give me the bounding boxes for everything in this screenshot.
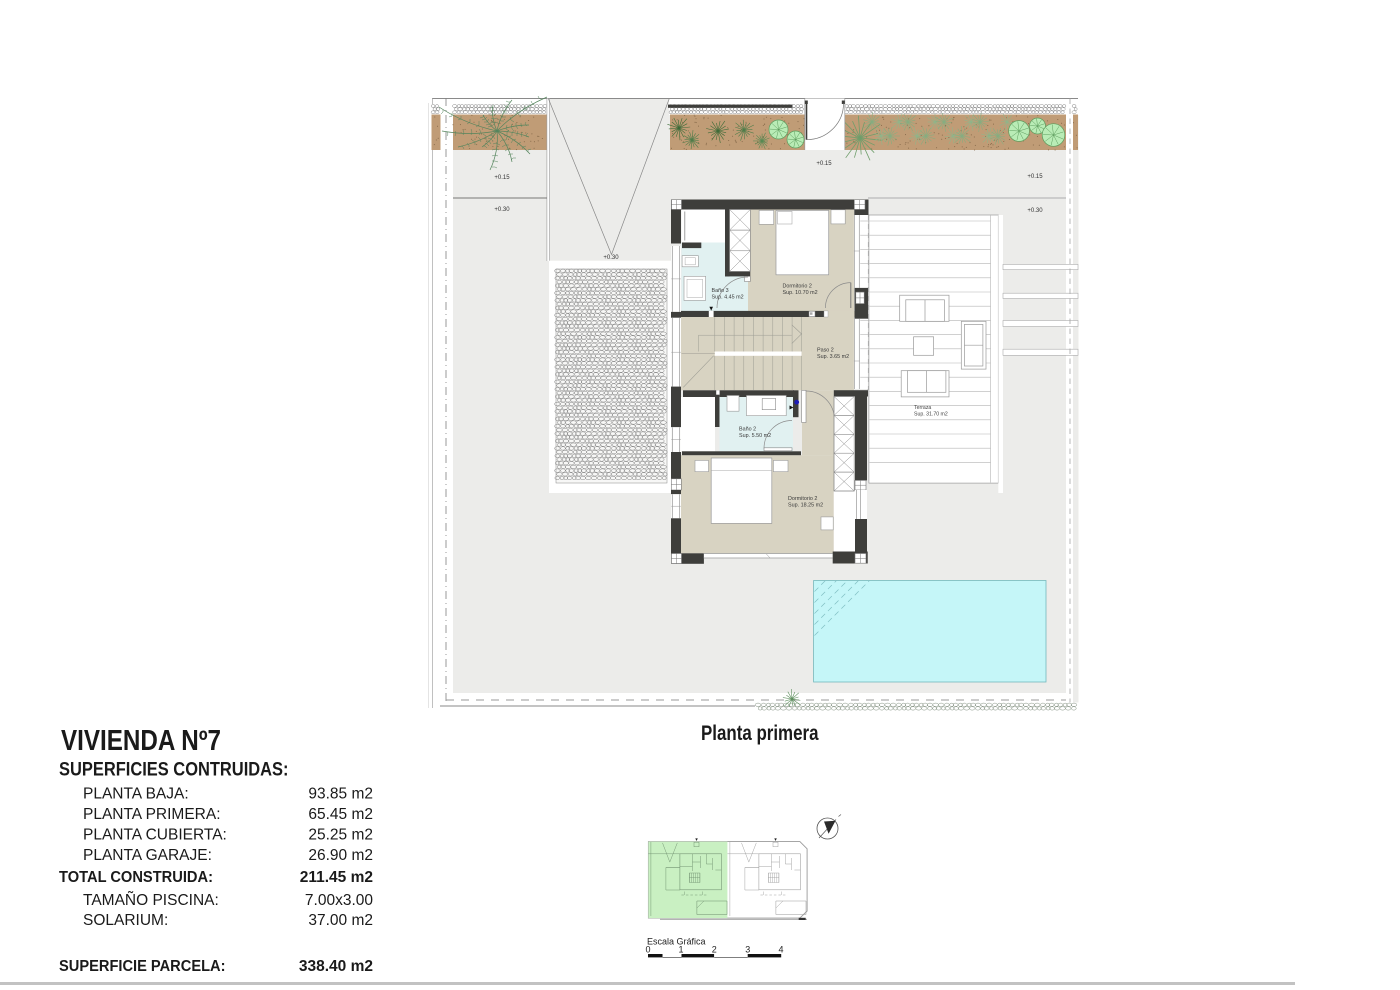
svg-text:Baño 2: Baño 2 [739,427,756,433]
svg-text:Planta primera: Planta primera [701,722,819,745]
svg-text:Escala Gráfica: Escala Gráfica [647,937,706,947]
svg-text:SUPERFICIE PARCELA:: SUPERFICIE PARCELA: [59,958,226,975]
svg-text:PLANTA GARAJE:: PLANTA GARAJE: [83,847,212,864]
svg-text:TAMAÑO PISCINA:: TAMAÑO PISCINA: [83,892,219,909]
svg-text:338.40 m2: 338.40 m2 [299,958,373,975]
svg-text:Terraza: Terraza [914,405,931,411]
svg-text:TOTAL CONSTRUIDA:: TOTAL CONSTRUIDA: [59,869,213,886]
svg-text:Sup. 5.50 m2: Sup. 5.50 m2 [739,433,771,439]
svg-text:+0.30: +0.30 [494,207,510,213]
svg-text:PLANTA PRIMERA:: PLANTA PRIMERA: [83,806,221,823]
svg-text:Dormitorio 2: Dormitorio 2 [783,284,812,290]
svg-text:Sup. 4.45 m2: Sup. 4.45 m2 [712,295,744,301]
svg-text:Baño 3: Baño 3 [712,288,729,294]
svg-text:2: 2 [712,945,717,955]
svg-text:VIVIENDA Nº7: VIVIENDA Nº7 [61,725,221,757]
svg-text:1: 1 [678,945,683,955]
svg-text:65.45 m2: 65.45 m2 [308,806,373,823]
svg-text:93.85 m2: 93.85 m2 [308,786,373,803]
svg-text:211.45 m2: 211.45 m2 [300,869,373,886]
svg-text:3: 3 [745,945,750,955]
svg-text:Sup. 10.70 m2: Sup. 10.70 m2 [783,290,818,296]
svg-text:PLANTA BAJA:: PLANTA BAJA: [83,786,189,803]
svg-text:26.90 m2: 26.90 m2 [308,847,373,864]
svg-text:Sup. 3.65 m2: Sup. 3.65 m2 [817,354,849,360]
svg-text:SUPERFICIES CONTRUIDAS:: SUPERFICIES CONTRUIDAS: [59,760,289,781]
svg-text:PLANTA CUBIERTA:: PLANTA CUBIERTA: [83,827,227,844]
svg-text:+0.15: +0.15 [1027,174,1043,180]
svg-text:+0.15: +0.15 [494,175,510,181]
svg-text:37.00 m2: 37.00 m2 [308,912,373,929]
svg-text:Dormitorio 2: Dormitorio 2 [788,496,817,502]
svg-text:0: 0 [645,945,650,955]
svg-text:Sup. 31.70 m2: Sup. 31.70 m2 [914,412,948,418]
svg-text:+0.30: +0.30 [1027,208,1043,214]
svg-text:Paso 2: Paso 2 [817,348,834,354]
svg-text:4: 4 [778,945,783,955]
svg-text:7.00x3.00: 7.00x3.00 [305,892,373,909]
svg-text:25.25 m2: 25.25 m2 [308,827,373,844]
svg-text:SOLARIUM:: SOLARIUM: [83,912,168,929]
svg-text:+0.15: +0.15 [816,161,832,167]
svg-text:+0.30: +0.30 [603,255,619,261]
svg-text:Sup. 18.25 m2: Sup. 18.25 m2 [788,503,823,509]
